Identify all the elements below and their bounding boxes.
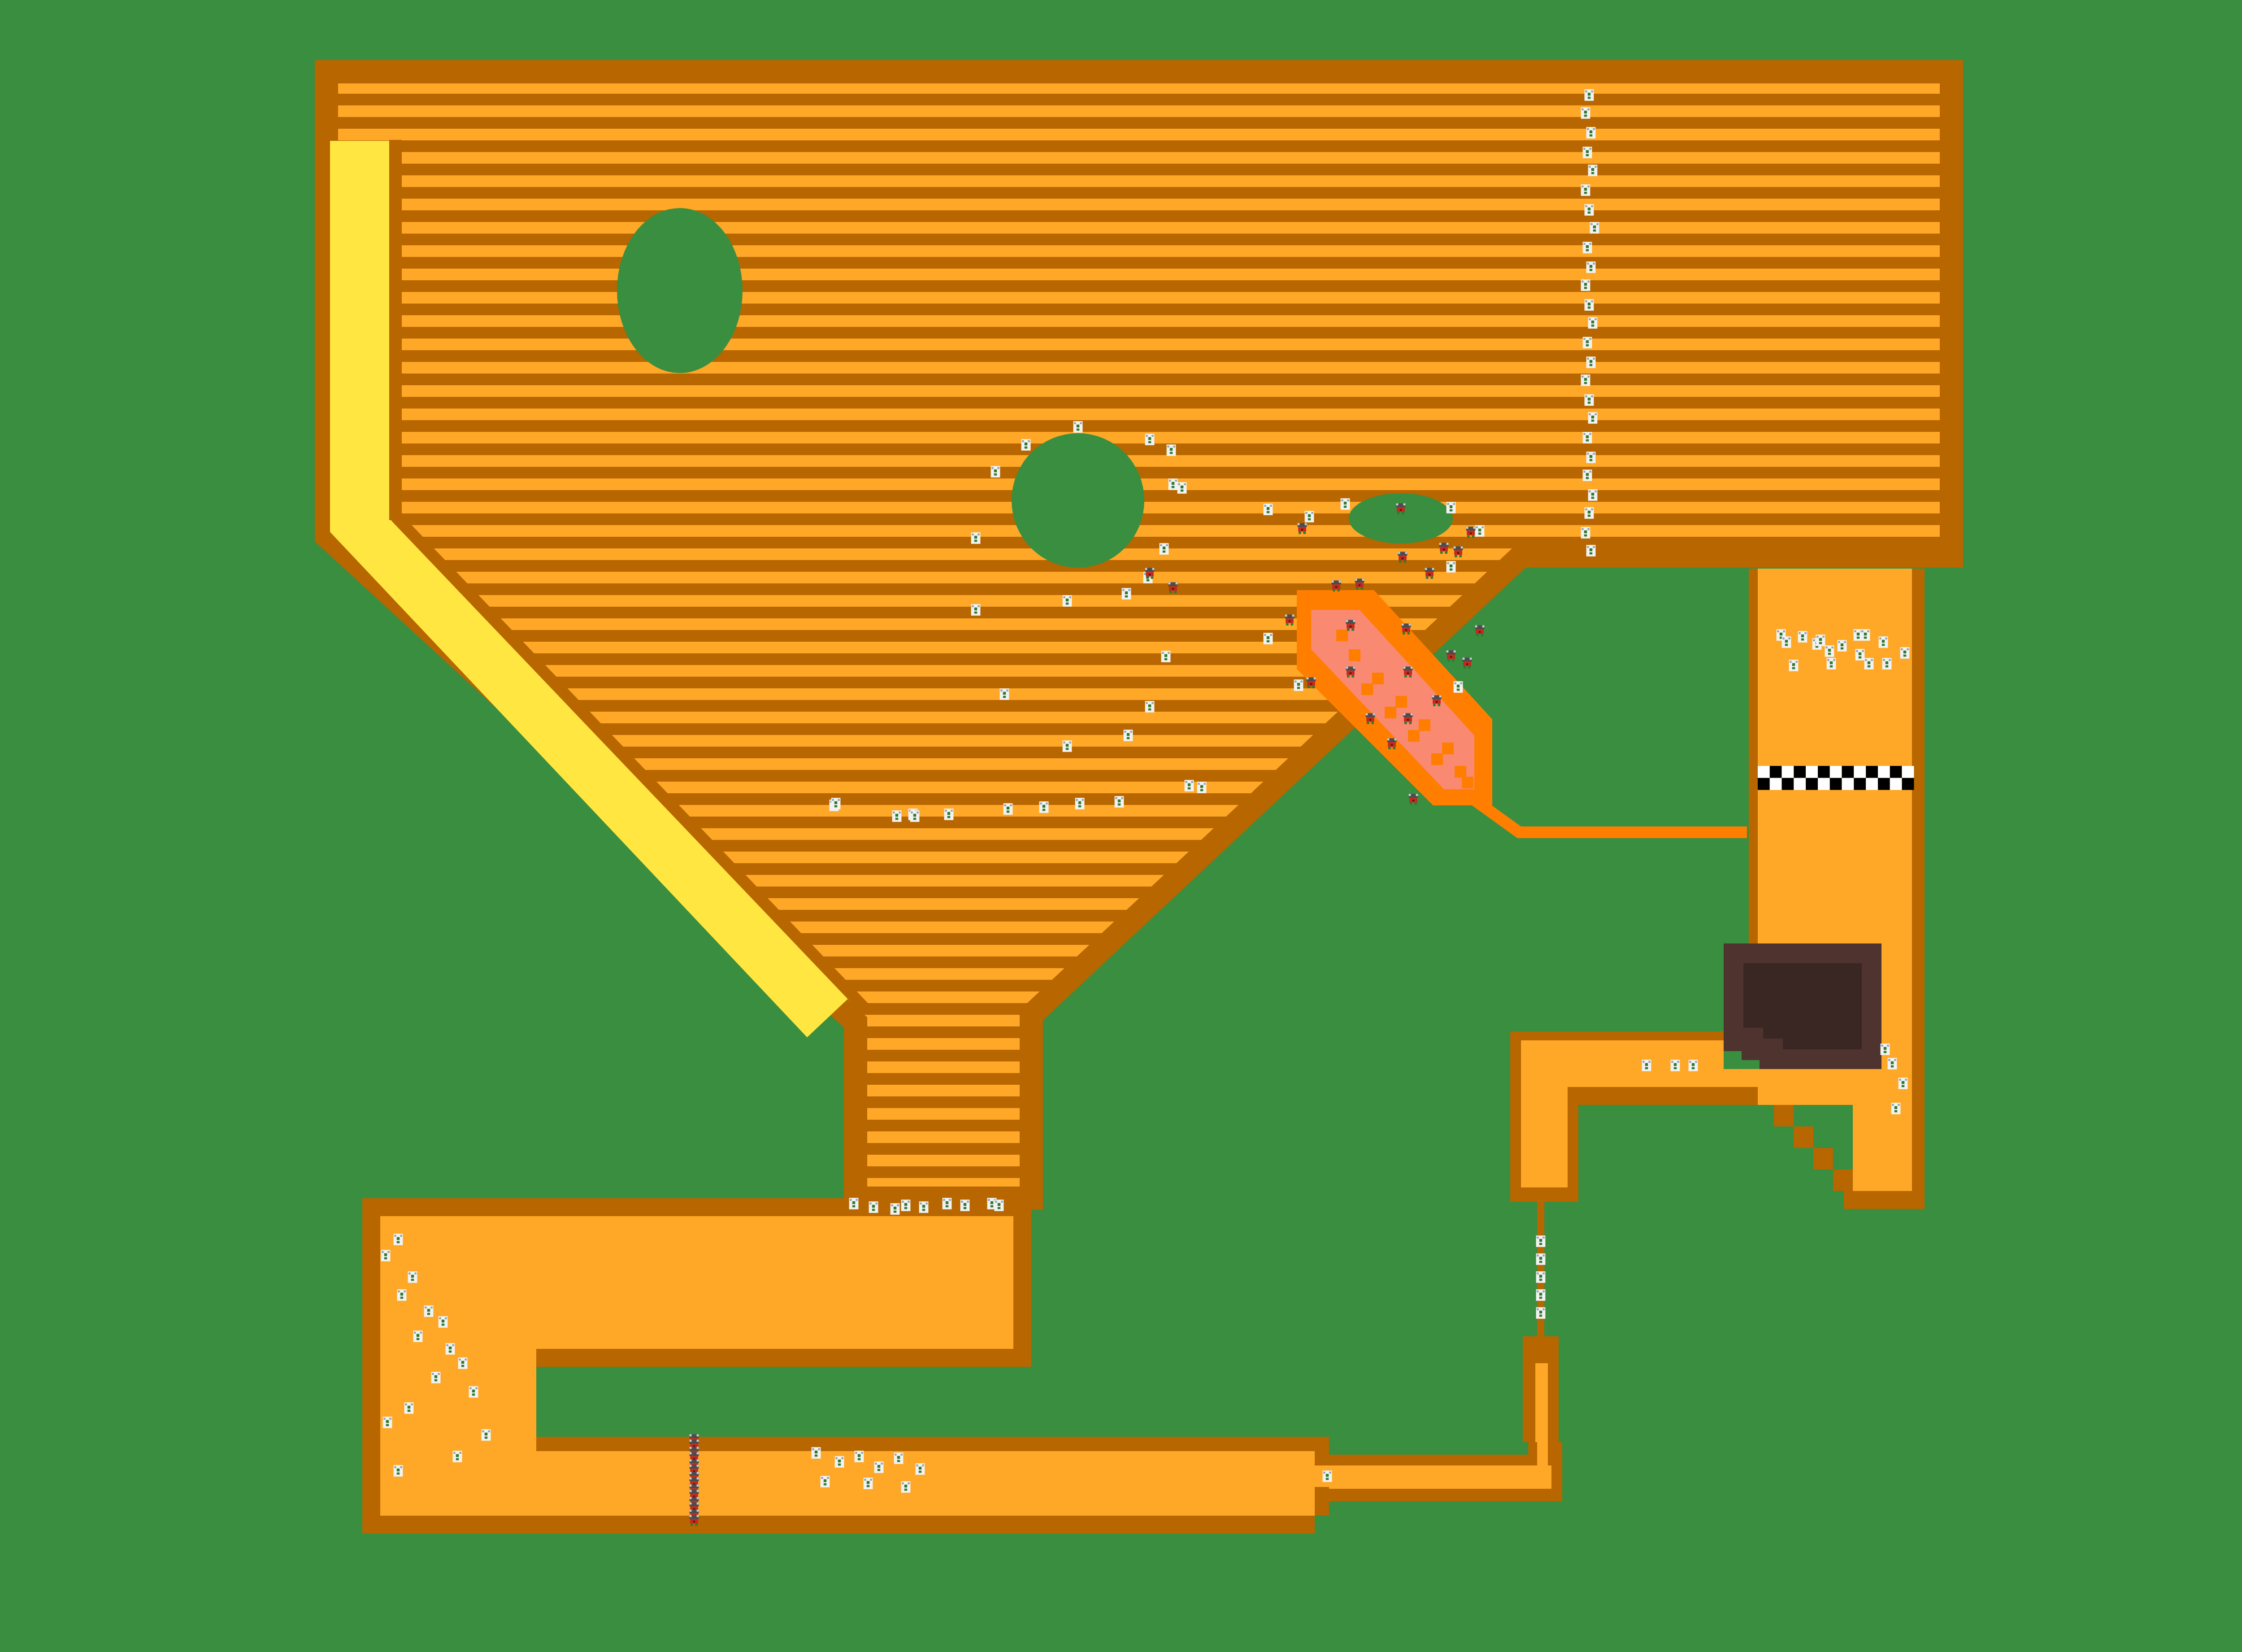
path-border-segment xyxy=(1013,1198,1031,1367)
seedling-sprite[interactable] xyxy=(919,1201,929,1213)
seedling-sprite[interactable] xyxy=(991,466,1000,478)
seedling-sprite[interactable] xyxy=(1000,688,1009,700)
seedling-sprite[interactable] xyxy=(1585,394,1594,406)
seedling-sprite[interactable] xyxy=(1039,801,1049,813)
seedling-sprite[interactable] xyxy=(864,1478,873,1489)
seedling-sprite[interactable] xyxy=(1888,1058,1897,1069)
green-gap xyxy=(536,1367,1031,1437)
checker-cell xyxy=(1854,766,1866,778)
seedling-sprite[interactable] xyxy=(995,1200,1004,1211)
checker-cell xyxy=(1818,766,1830,778)
trail-dither-pixel xyxy=(1385,707,1396,718)
checker-cell xyxy=(1830,778,1842,790)
seedling-sprite[interactable] xyxy=(1583,470,1592,481)
seedling-sprite[interactable] xyxy=(1588,317,1598,329)
seedling-sprite[interactable] xyxy=(1882,658,1892,669)
seedling-sprite[interactable] xyxy=(1583,337,1592,348)
path-border-segment xyxy=(1912,569,1925,1209)
path-fill-segment xyxy=(1535,1363,1548,1442)
seedling-sprite[interactable] xyxy=(1177,482,1187,494)
seedling-sprite[interactable] xyxy=(1536,1307,1546,1319)
seedling-sprite[interactable] xyxy=(1671,1060,1680,1071)
dark-building[interactable] xyxy=(1724,943,1881,1069)
checker-cell xyxy=(1890,766,1902,778)
path-step-segment xyxy=(1774,1105,1794,1126)
checker-cell xyxy=(1878,766,1890,778)
seedling-sprite[interactable] xyxy=(1169,478,1178,490)
seedling-sprite[interactable] xyxy=(812,1447,821,1459)
seedling-sprite[interactable] xyxy=(901,1200,911,1211)
seedling-sprite[interactable] xyxy=(1063,740,1072,752)
seedling-sprite[interactable] xyxy=(1581,107,1590,119)
seedling-sprite[interactable] xyxy=(1145,434,1155,445)
seedling-sprite[interactable] xyxy=(1021,439,1031,451)
seedling-sprite[interactable] xyxy=(1160,543,1169,555)
seedling-sprite[interactable] xyxy=(1588,412,1598,424)
seedling-sprite[interactable] xyxy=(1855,649,1865,661)
seedling-sprite[interactable] xyxy=(1145,701,1155,713)
seedling-sprite[interactable] xyxy=(1004,803,1013,815)
seedling-sprite[interactable] xyxy=(916,1463,925,1475)
seedling-sprite[interactable] xyxy=(901,1481,911,1493)
game-map-canvas[interactable] xyxy=(0,0,2242,1652)
seedling-sprite[interactable] xyxy=(1583,242,1592,253)
seedling-sprite[interactable] xyxy=(1816,635,1825,646)
checker-cell xyxy=(1806,766,1818,778)
seedling-sprite[interactable] xyxy=(404,1402,414,1414)
checker-cell xyxy=(1866,766,1878,778)
trail-dither-pixel xyxy=(1395,696,1407,708)
path-step-segment xyxy=(1315,1487,1329,1516)
seedling-sprite[interactable] xyxy=(944,809,954,820)
checker-cell xyxy=(1794,766,1806,778)
path-border-segment xyxy=(362,1198,380,1534)
checker-cell xyxy=(1878,778,1890,790)
seedling-sprite[interactable] xyxy=(1294,679,1303,691)
path-step-segment xyxy=(1813,1148,1833,1169)
seedling-sprite[interactable] xyxy=(453,1451,462,1462)
green-hole xyxy=(1012,433,1144,568)
seedling-sprite[interactable] xyxy=(1586,127,1596,139)
path-fill-segment xyxy=(1521,1040,1568,1187)
checker-cell xyxy=(1890,778,1902,790)
seedling-sprite[interactable] xyxy=(413,1330,423,1342)
seedling-sprite[interactable] xyxy=(1588,165,1598,176)
seedling-sprite[interactable] xyxy=(891,1203,900,1215)
path-fill-segment xyxy=(536,1451,1315,1516)
seedling-sprite[interactable] xyxy=(1581,374,1590,386)
seedling-sprite[interactable] xyxy=(1115,796,1124,808)
path-border-segment xyxy=(522,1437,1315,1451)
seedling-sprite[interactable] xyxy=(394,1234,403,1245)
seedling-sprite[interactable] xyxy=(1167,444,1176,456)
path-border-segment xyxy=(522,1349,1031,1367)
seedling-sprite[interactable] xyxy=(1581,279,1590,291)
path-fill-segment xyxy=(1315,1465,1551,1489)
path-border-segment xyxy=(1844,1191,1912,1209)
path-step-segment xyxy=(1794,1126,1813,1148)
trail-dither-pixel xyxy=(1419,719,1430,731)
seedling-sprite[interactable] xyxy=(1891,1103,1901,1114)
seedling-sprite[interactable] xyxy=(1475,525,1485,537)
seedling-sprite[interactable] xyxy=(971,532,981,544)
seedling-sprite[interactable] xyxy=(1124,730,1133,741)
seedling-sprite[interactable] xyxy=(1583,147,1592,158)
seedling-sprite[interactable] xyxy=(1583,432,1592,443)
path-border-segment xyxy=(362,1198,1031,1216)
trail-dither-pixel xyxy=(1431,753,1443,765)
seedling-sprite[interactable] xyxy=(849,1198,859,1209)
seedling-sprite[interactable] xyxy=(1185,780,1194,791)
path-step-segment xyxy=(1833,1169,1853,1191)
seedling-sprite[interactable] xyxy=(1447,502,1456,513)
seedling-sprite[interactable] xyxy=(1581,184,1590,196)
seedling-sprite[interactable] xyxy=(1689,1060,1698,1071)
seedling-sprite[interactable] xyxy=(910,810,920,822)
checker-cell xyxy=(1830,766,1842,778)
seedling-sprite[interactable] xyxy=(482,1429,491,1441)
checker-cell xyxy=(1902,778,1914,790)
trail-dither-pixel xyxy=(1455,766,1466,778)
seedling-sprite[interactable] xyxy=(1642,1060,1651,1071)
trail-dither-pixel xyxy=(1349,649,1360,661)
seedling-sprite[interactable] xyxy=(1590,222,1599,234)
seedling-sprite[interactable] xyxy=(394,1465,403,1477)
seedling-sprite[interactable] xyxy=(835,1456,844,1468)
trail-dither-pixel xyxy=(1408,730,1420,742)
building-step xyxy=(1743,1028,1763,1049)
seedling-sprite[interactable] xyxy=(1586,452,1596,463)
seedling-sprite[interactable] xyxy=(892,810,902,822)
seedling-sprite[interactable] xyxy=(439,1316,448,1328)
trail-dither-pixel xyxy=(1442,743,1454,754)
seedling-sprite[interactable] xyxy=(1305,511,1314,522)
seedling-sprite[interactable] xyxy=(1447,561,1456,573)
seedling-sprite[interactable] xyxy=(424,1305,434,1317)
seedling-sprite[interactable] xyxy=(397,1289,407,1301)
checker-cell xyxy=(1782,766,1794,778)
seedling-sprite[interactable] xyxy=(960,1200,970,1211)
seedling-sprite[interactable] xyxy=(1323,1470,1332,1482)
seedling-sprite[interactable] xyxy=(469,1386,478,1398)
seedling-sprite[interactable] xyxy=(894,1452,904,1464)
seedling-sprite[interactable] xyxy=(1827,658,1836,669)
seedling-sprite[interactable] xyxy=(383,1417,392,1428)
seedling-sprite[interactable] xyxy=(1161,651,1171,662)
seedling-sprite[interactable] xyxy=(446,1343,455,1355)
seedling-sprite[interactable] xyxy=(1588,489,1598,501)
checker-cell xyxy=(1854,778,1866,790)
seedling-sprite[interactable] xyxy=(1838,640,1847,652)
seedling-sprite[interactable] xyxy=(869,1201,878,1213)
seedling-sprite[interactable] xyxy=(1586,356,1596,368)
seedling-sprite[interactable] xyxy=(1585,507,1594,519)
seedling-sprite[interactable] xyxy=(1536,1289,1546,1301)
seedling-sprite[interactable] xyxy=(1585,204,1594,216)
seedling-sprite[interactable] xyxy=(458,1357,468,1369)
path-fill-segment xyxy=(1537,1442,1548,1489)
checker-cell xyxy=(1758,766,1770,778)
seedling-sprite[interactable] xyxy=(1075,798,1085,809)
trail-dither-pixel xyxy=(1462,777,1473,788)
checker-cell xyxy=(1758,778,1770,790)
building-step xyxy=(1763,1039,1783,1049)
yellow-strip-border xyxy=(389,140,402,520)
seedling-sprite[interactable] xyxy=(971,604,981,616)
seedling-sprite[interactable] xyxy=(1536,1235,1546,1247)
seedling-sprite[interactable] xyxy=(431,1372,441,1383)
seedling-sprite[interactable] xyxy=(1879,636,1888,648)
seedling-sprite[interactable] xyxy=(1454,681,1463,693)
seedling-sprite[interactable] xyxy=(1798,631,1808,643)
checker-cell xyxy=(1794,778,1806,790)
seedling-sprite[interactable] xyxy=(1073,421,1083,433)
seedling-sprite[interactable] xyxy=(1864,658,1874,669)
seedling-sprite[interactable] xyxy=(1881,1043,1890,1055)
seedling-sprite[interactable] xyxy=(1264,504,1273,515)
seedling-sprite[interactable] xyxy=(1581,527,1590,539)
checker-cell xyxy=(1842,778,1854,790)
seedling-sprite[interactable] xyxy=(1264,633,1273,644)
seedling-sprite[interactable] xyxy=(1197,782,1207,793)
seedling-sprite[interactable] xyxy=(408,1271,417,1283)
seedling-sprite[interactable] xyxy=(1341,498,1350,510)
seedling-sprite[interactable] xyxy=(1585,89,1594,101)
seedling-sprite[interactable] xyxy=(1789,660,1799,671)
green-hole xyxy=(1349,493,1453,543)
seedling-sprite[interactable] xyxy=(1899,1078,1908,1089)
seedling-sprite[interactable] xyxy=(381,1250,391,1261)
seedling-sprite[interactable] xyxy=(821,1476,830,1487)
trail-dither-pixel xyxy=(1336,630,1348,641)
checker-cell xyxy=(1866,778,1878,790)
seedling-sprite[interactable] xyxy=(1122,588,1131,600)
path-fill-segment xyxy=(1853,1105,1912,1191)
seedling-sprite[interactable] xyxy=(1586,545,1596,556)
trail-dither-pixel xyxy=(1372,673,1384,684)
seedling-sprite[interactable] xyxy=(874,1461,884,1473)
seedling-sprite[interactable] xyxy=(1900,647,1910,659)
checker-cell xyxy=(1806,778,1818,790)
checker-cell xyxy=(1902,766,1914,778)
seedling-sprite[interactable] xyxy=(1585,299,1594,311)
checker-cell xyxy=(1818,778,1830,790)
seedling-sprite[interactable] xyxy=(1063,595,1072,607)
building-step-notch xyxy=(1724,1051,1742,1069)
green-hole xyxy=(617,208,743,373)
seedling-sprite[interactable] xyxy=(1861,629,1870,641)
seedling-sprite[interactable] xyxy=(1536,1271,1546,1283)
seedling-sprite[interactable] xyxy=(1825,645,1834,657)
checker-cell xyxy=(1842,766,1854,778)
finish-line-checker xyxy=(1758,766,1914,790)
checker-cell xyxy=(1782,778,1794,790)
seedling-sprite[interactable] xyxy=(831,798,841,809)
seedling-sprite[interactable] xyxy=(1536,1253,1546,1265)
path-border-segment xyxy=(362,1516,1315,1534)
building-step-notch xyxy=(1742,1060,1760,1069)
checker-cell xyxy=(1770,778,1782,790)
seedling-sprite[interactable] xyxy=(855,1451,864,1462)
seedling-sprite[interactable] xyxy=(1782,636,1791,648)
trail-dither-pixel xyxy=(1361,683,1373,695)
seedling-sprite[interactable] xyxy=(1586,261,1596,273)
path-step-segment xyxy=(1315,1437,1329,1465)
seedling-sprite[interactable] xyxy=(943,1198,952,1209)
checker-cell xyxy=(1770,766,1782,778)
path-fill-segment xyxy=(536,1216,1013,1349)
